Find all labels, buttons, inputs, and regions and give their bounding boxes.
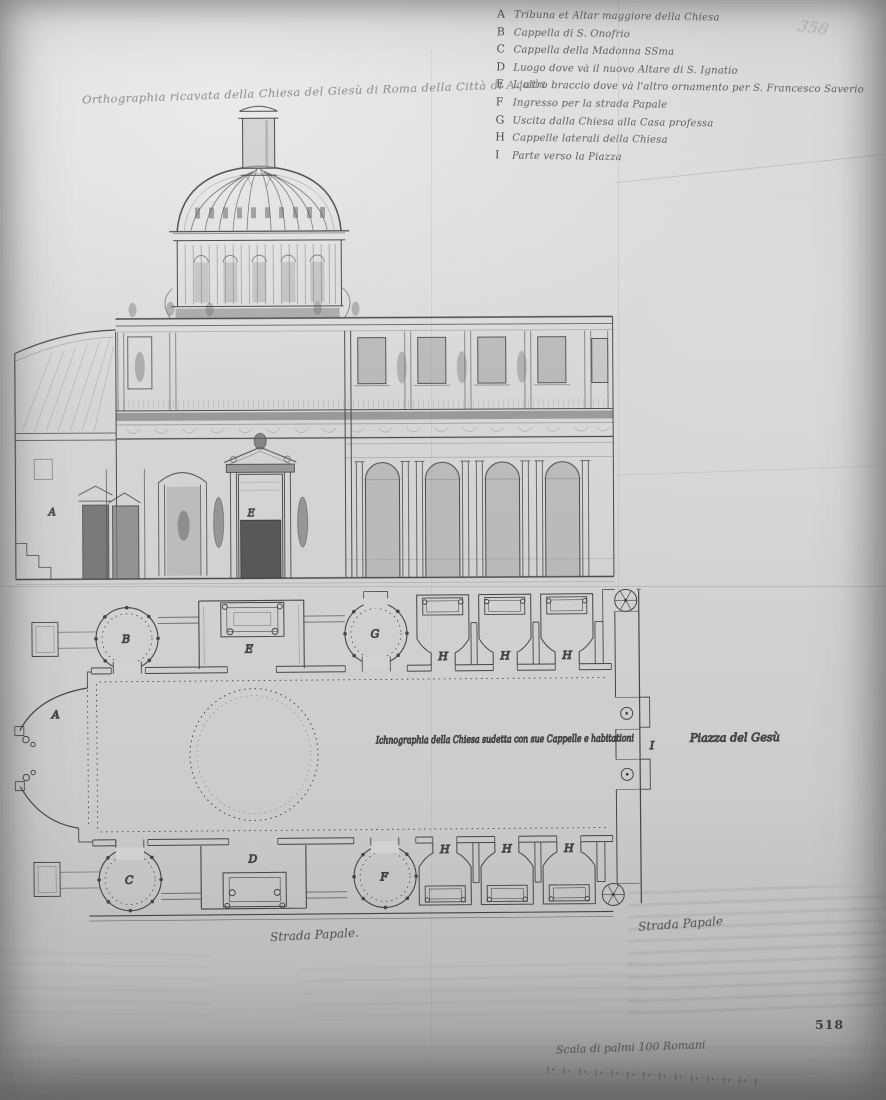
plan-label-i: I xyxy=(649,739,655,752)
legend-text: L'altro braccio dove và l'altro ornament… xyxy=(513,80,864,96)
elevation-drawing: A E xyxy=(13,104,613,584)
dome-projection-dotted xyxy=(99,677,608,831)
plan-label-h4: H xyxy=(439,843,450,856)
street-edge-lines xyxy=(89,911,613,921)
plan-caption: Ichnographia della Chiesa sudetta con su… xyxy=(375,733,634,746)
legend-text: Luogo dove và il nuovo Altare di S. Igna… xyxy=(513,62,738,76)
legend-text: Cappella della Madonna SSma xyxy=(513,45,674,58)
plan-label-h5: H xyxy=(501,842,512,855)
legend-key: B xyxy=(497,25,514,38)
legend-text: Parte verso la Piazza xyxy=(512,150,622,163)
plan-label-h1: H xyxy=(437,650,448,663)
legend-key: G xyxy=(495,113,512,126)
elevation-label-e: E xyxy=(247,508,256,519)
elevation-label-a: A xyxy=(48,507,56,518)
plan-label-h3: H xyxy=(561,649,572,662)
plan-label-a: A xyxy=(51,708,60,721)
dome-windows xyxy=(195,207,325,219)
scale-bar xyxy=(548,1066,758,1085)
legend-key: D xyxy=(496,60,513,73)
legend-text: Cappelle laterali della Chiesa xyxy=(512,133,668,146)
legend-text: Tribuna et Altar maggiore della Chiesa xyxy=(514,10,720,24)
central-portal xyxy=(224,433,297,578)
plan-label-h6: H xyxy=(563,842,574,855)
plan-label-c: C xyxy=(125,874,134,887)
chapel-c-round xyxy=(34,839,163,913)
right-wall xyxy=(615,590,652,903)
legend-text: Uscita dalla Chiesa alla Casa professa xyxy=(512,115,713,129)
legend-key: C xyxy=(496,43,513,56)
apse-section xyxy=(15,330,117,580)
plan-label-b: B xyxy=(121,633,130,646)
arcade-arches xyxy=(354,461,591,578)
legend-text: Ingresso per la strada Papale xyxy=(513,98,668,111)
chapel-b-round xyxy=(32,606,160,675)
plan-label-h2: H xyxy=(499,649,510,662)
plan-label-g: G xyxy=(371,627,380,640)
plan-drawing: A B C D E F G H H H H H H I Ichnographia… xyxy=(14,588,782,922)
manuscript-photo: A E xyxy=(0,0,886,1100)
legend-key: I xyxy=(495,148,512,161)
legend-key: A xyxy=(497,7,514,20)
plan-label-e: E xyxy=(244,643,253,656)
spiral-stair-top xyxy=(603,589,641,621)
legend-text: Cappella di S. Onofrio xyxy=(514,27,630,40)
plan-label-f: F xyxy=(379,870,388,883)
room-e-altar xyxy=(199,600,305,669)
legend-key: E xyxy=(496,78,513,91)
spiral-stair-bottom xyxy=(602,883,624,905)
apse-plan xyxy=(14,672,97,843)
plan-label-d: D xyxy=(247,853,257,866)
piazza-label: Piazza del Gesù xyxy=(689,730,780,745)
legend-key: F xyxy=(496,95,513,108)
legend-key: H xyxy=(495,131,512,144)
dome-and-drum xyxy=(164,106,350,319)
printed-folio-number: 518 xyxy=(815,1017,844,1032)
pencil-folio-number: 358 xyxy=(796,16,831,38)
